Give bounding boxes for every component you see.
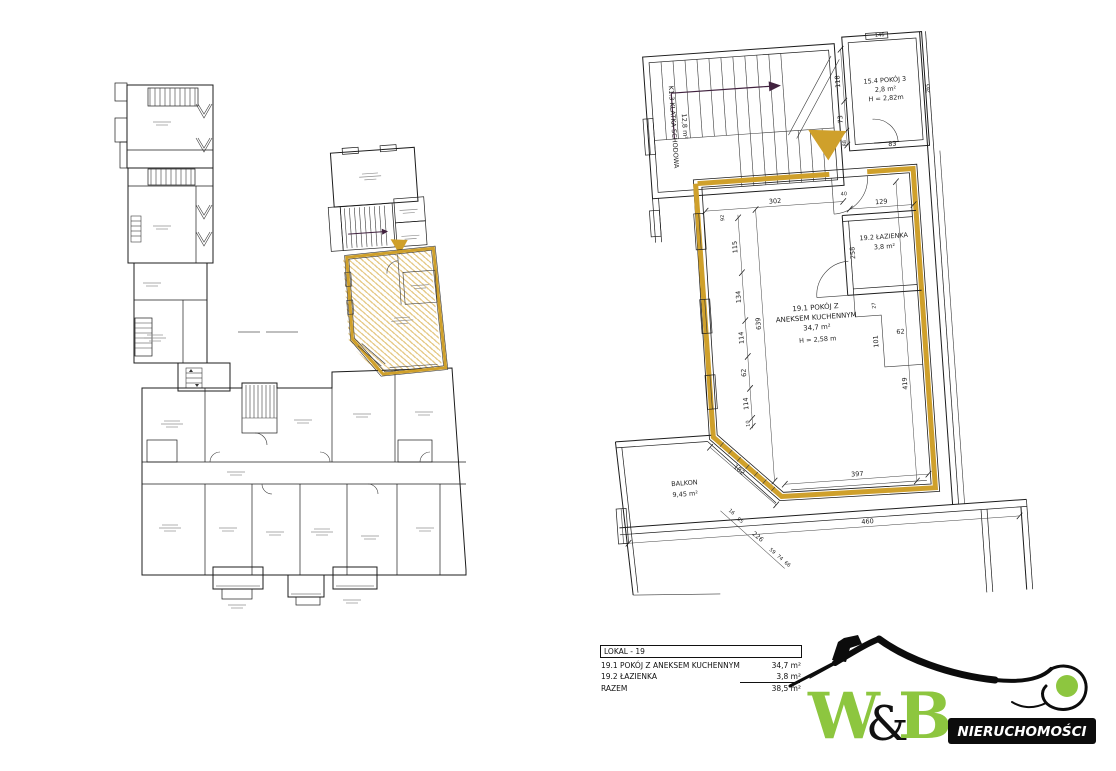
room-label-mark — [311, 529, 333, 535]
svg-text:302: 302 — [769, 197, 782, 206]
logo-subtitle: NIERUCHOMOŚCI — [957, 722, 1086, 740]
room-label-mark — [227, 472, 245, 475]
svg-text:95: 95 — [736, 516, 745, 525]
room-label-mark — [266, 532, 284, 535]
svg-text:40: 40 — [841, 191, 848, 197]
connector-stair — [186, 368, 202, 388]
bay-windows — [213, 567, 377, 605]
room-label-mark — [143, 283, 161, 286]
room-label-mark — [353, 414, 371, 417]
overview-bottom-band — [142, 368, 466, 608]
svg-text:73: 73 — [836, 115, 845, 124]
svg-text:H = 2,58 m: H = 2,58 m — [799, 334, 837, 345]
room-label-mark — [153, 122, 171, 125]
svg-text:460: 460 — [861, 517, 874, 526]
balcony-area: 9,45 m² — [672, 489, 698, 499]
detail-main-room: 19.1 POKÓJ Z ANEKSEM KUCHENNYM 34,7 m² H… — [775, 300, 859, 347]
room-label-mark — [159, 525, 181, 531]
staircase-label: K1.3 KLATKA SCHODOWA — [667, 86, 681, 169]
room-label-mark — [391, 317, 413, 325]
overview-plan — [115, 83, 466, 608]
room-label-mark — [161, 421, 183, 427]
stair-hatch — [242, 383, 277, 445]
svg-text:101: 101 — [872, 335, 881, 348]
svg-text:115: 115 — [731, 241, 740, 254]
stair-direction-arrow — [769, 81, 782, 92]
svg-text:ANEKSEM KUCHENNYM: ANEKSEM KUCHENNYM — [776, 311, 857, 325]
room154-area: 2,8 m² — [875, 84, 897, 93]
svg-text:114: 114 — [742, 397, 751, 410]
svg-text:129: 129 — [875, 197, 888, 206]
svg-text:83: 83 — [888, 140, 897, 149]
room-label-mark — [411, 285, 429, 289]
agency-logo: W & B NIERUCHOMOŚCI — [780, 618, 1116, 771]
overview-unit-outline — [344, 246, 448, 378]
stair-hatch — [135, 318, 152, 356]
balcony-label: BALKON — [671, 478, 698, 488]
stair-hatch — [148, 88, 198, 106]
room-label-mark — [294, 420, 312, 423]
legend-row: 19.2 ŁAZIENKA 3,8 m² — [600, 671, 802, 682]
svg-text:258: 258 — [848, 246, 857, 259]
svg-text:226: 226 — [750, 530, 765, 544]
overview-left-wing — [115, 83, 230, 391]
svg-text:92: 92 — [720, 214, 726, 221]
detail-plan: K1.3 KLATKA SCHODOWA 12,8 m² 15.4 POKÓJ … — [584, 25, 1032, 618]
svg-text:27: 27 — [871, 302, 877, 309]
bathroom-area: 3,8 m² — [874, 242, 896, 251]
room154-label: 15.4 POKÓJ 3 — [863, 74, 906, 86]
svg-text:34,7 m²: 34,7 m² — [803, 323, 831, 333]
legend-total-row: RAZEM 38,5 m² — [600, 683, 802, 694]
room-label-mark — [144, 335, 166, 341]
bathroom-label: 19.2 ŁAZIENKA — [859, 231, 909, 242]
svg-text:19.1 POKÓJ Z: 19.1 POKÓJ Z — [792, 301, 839, 313]
svg-text:62: 62 — [740, 368, 749, 377]
area-legend: LOKAL - 19 19.1 POKÓJ Z ANEKSEM KUCHENNY… — [600, 645, 802, 694]
detail-bathroom: 19.2 ŁAZIENKA 3,8 m² 129 258 27 101 62 — [810, 195, 928, 371]
room-label-mark — [415, 412, 433, 415]
stair-hatch — [340, 203, 395, 251]
room-label-mark — [401, 235, 419, 239]
overview-rotated-section — [324, 142, 448, 379]
svg-text:88: 88 — [842, 140, 848, 147]
staircase-area: 12,8 m² — [680, 113, 690, 139]
floorplan-sheet: { "colors": {"gold": "#CFA02B", "green":… — [0, 0, 1116, 771]
svg-text:146: 146 — [875, 32, 885, 39]
svg-text:397: 397 — [851, 470, 864, 479]
svg-text:62: 62 — [896, 327, 905, 336]
detail-room-154: 15.4 POKÓJ 3 2,8 m² H = 2,82m 118 73 88 … — [831, 29, 936, 151]
svg-text:10: 10 — [745, 420, 751, 427]
room-label-mark — [400, 209, 418, 213]
radiator-symbols — [131, 104, 212, 246]
room-label-mark — [219, 528, 237, 531]
logo-letter-b: B — [898, 679, 952, 754]
legend-header: LOKAL - 19 — [600, 645, 802, 658]
detail-dimensions: 302 92 115 134 114 62 114 10 639 182 397… — [689, 178, 933, 513]
room-label-mark — [361, 536, 379, 539]
stair-hatch — [148, 169, 195, 185]
svg-text:265: 265 — [925, 83, 932, 93]
room154-height: H = 2,82m — [868, 93, 904, 103]
room-label-mark — [343, 600, 361, 603]
room-label-mark — [359, 173, 381, 181]
svg-text:639: 639 — [754, 317, 763, 330]
detail-balcony: BALKON 9,45 m² 16 95 226 59 74 66 — [611, 430, 793, 601]
legend-row: 19.1 POKÓJ Z ANEKSEM KUCHENNYM 34,7 m² — [600, 660, 802, 671]
room-label-mark — [153, 226, 171, 229]
svg-text:134: 134 — [734, 290, 743, 303]
svg-text:419: 419 — [901, 377, 910, 390]
svg-text:114: 114 — [737, 331, 746, 344]
room-label-mark — [228, 605, 246, 608]
svg-text:16: 16 — [727, 508, 736, 517]
logo-green-dot — [1056, 675, 1078, 697]
svg-text:118: 118 — [833, 75, 842, 88]
room-label-mark — [416, 528, 434, 531]
